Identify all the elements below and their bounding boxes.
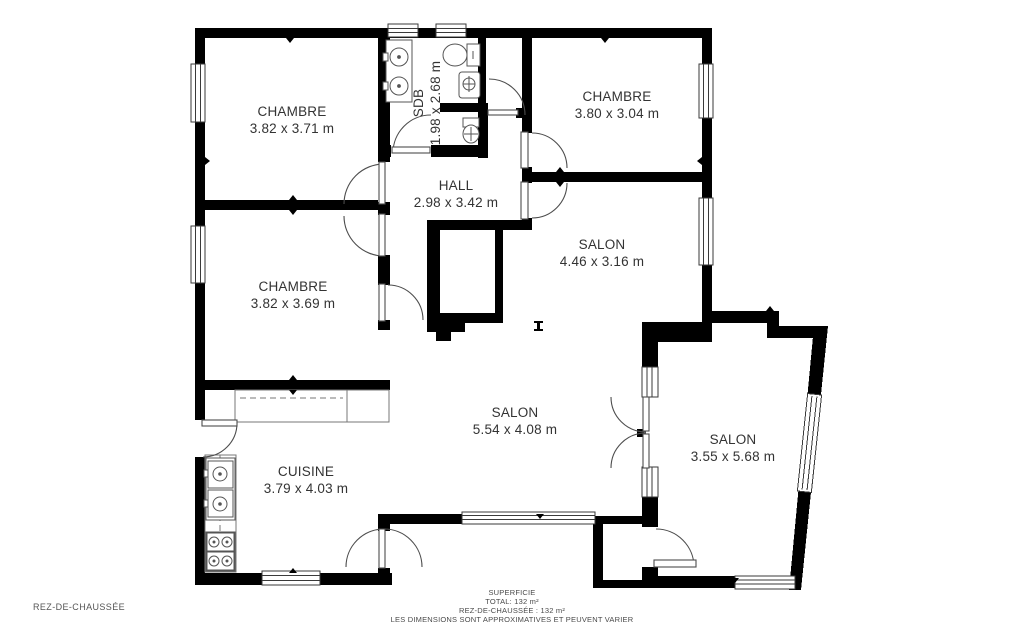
door-swing-icon: [654, 529, 696, 567]
window-icon: [642, 467, 658, 497]
door-swing-icon: [346, 529, 422, 568]
room-label-chambre-mid-left: CHAMBRE 3.82 x 3.69 m: [251, 278, 335, 312]
room-label-sdb: SDB 1.98 x 2.68 m: [410, 61, 444, 145]
door-swing-icon: [202, 420, 237, 457]
bidet-icon: [459, 72, 480, 98]
room-label-salon-3: SALON 3.55 x 5.68 m: [691, 431, 775, 465]
window-icon: [191, 64, 205, 122]
room-dimensions: 4.46 x 3.16 m: [560, 253, 644, 270]
room-dimensions: 1.98 x 2.68 m: [427, 61, 444, 145]
room-name: SDB: [410, 61, 427, 145]
room-dimensions: 3.79 x 4.03 m: [264, 480, 348, 497]
window-icon: [462, 512, 595, 524]
room-label-hall: HALL 2.98 x 3.42 m: [414, 177, 498, 211]
window-icon: [797, 394, 821, 493]
window-icon: [388, 24, 418, 37]
door-swing-icon: [344, 214, 385, 256]
room-name: CHAMBRE: [575, 88, 659, 105]
room-dimensions: 5.54 x 4.08 m: [473, 421, 557, 438]
surface-total: TOTAL: 132 m²: [0, 597, 1024, 606]
surface-title: SUPERFICIE: [0, 588, 1024, 597]
door-swing-icon: [521, 132, 567, 168]
window-icon: [262, 571, 320, 585]
room-label-chambre-top-right: CHAMBRE 3.80 x 3.04 m: [575, 88, 659, 122]
window-icon: [642, 367, 658, 397]
room-dimensions: 2.98 x 3.42 m: [414, 194, 498, 211]
door-swing-icon: [344, 162, 385, 204]
wc-toilet-icon: [463, 118, 479, 143]
floor-plan-drawing: [0, 0, 1024, 640]
room-name: SALON: [691, 431, 775, 448]
window-icon: [699, 64, 713, 118]
room-name: SALON: [560, 236, 644, 253]
room-name: CHAMBRE: [250, 103, 334, 120]
room-name: SALON: [473, 404, 557, 421]
door-swing-icon: [521, 182, 567, 219]
room-dimensions: 3.82 x 3.71 m: [250, 120, 334, 137]
room-dimensions: 3.55 x 5.68 m: [691, 448, 775, 465]
surface-rdc: REZ-DE-CHAUSSÉE : 132 m²: [0, 606, 1024, 615]
stove-icon: [206, 532, 235, 571]
window-icon: [191, 226, 205, 283]
room-label-cuisine: CUISINE 3.79 x 4.03 m: [264, 463, 348, 497]
room-label-salon-1: SALON 4.46 x 3.16 m: [560, 236, 644, 270]
double-sink-icon: [383, 40, 412, 102]
floor-plan-page: CHAMBRE 3.82 x 3.71 m SDB 1.98 x 2.68 m …: [0, 0, 1024, 640]
kitchen-sink-icon: [204, 458, 235, 520]
room-label-chambre-top-left: CHAMBRE 3.82 x 3.71 m: [250, 103, 334, 137]
toilet-icon: [443, 44, 480, 66]
room-label-salon-2: SALON 5.54 x 4.08 m: [473, 404, 557, 438]
room-name: CUISINE: [264, 463, 348, 480]
window-icon: [699, 198, 713, 265]
room-dimensions: 3.82 x 3.69 m: [251, 295, 335, 312]
room-name: HALL: [414, 177, 498, 194]
kitchen-counter-icon: [235, 390, 389, 422]
window-icon: [436, 24, 466, 37]
surface-disclaimer: LES DIMENSIONS SONT APPROXIMATIVES ET PE…: [0, 615, 1024, 624]
room-name: CHAMBRE: [251, 278, 335, 295]
surface-summary: SUPERFICIE TOTAL: 132 m² REZ-DE-CHAUSSÉE…: [0, 588, 1024, 624]
room-dimensions: 3.80 x 3.04 m: [575, 105, 659, 122]
